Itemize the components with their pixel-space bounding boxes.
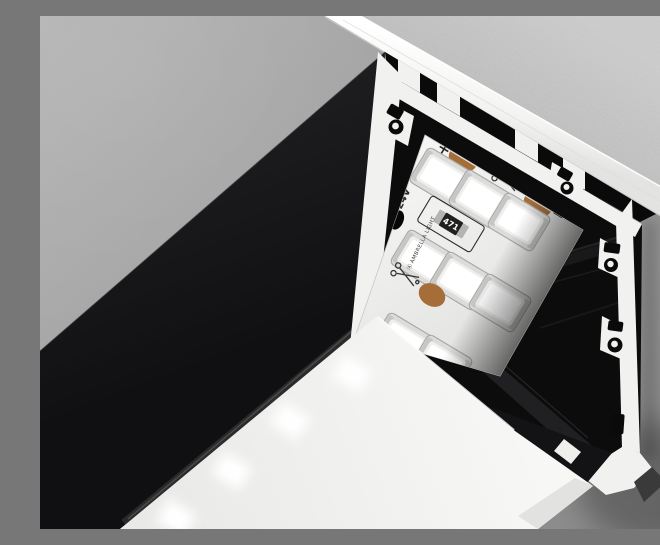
hook-slot-icon: [611, 414, 624, 435]
product-render: 471 24V ⒶAMBRELLA LIGHT: [40, 16, 660, 529]
